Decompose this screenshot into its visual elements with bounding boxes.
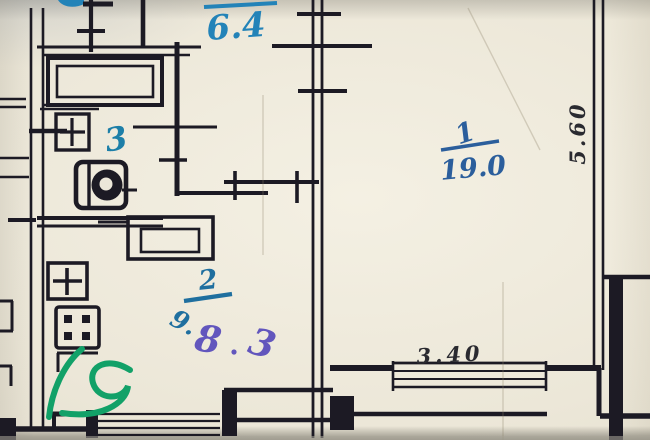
corrected-area-digit: 3 <box>244 318 281 367</box>
bathroom-number-label: 3 <box>102 118 131 159</box>
decimal-dot <box>231 349 236 354</box>
loggia-wall-bar <box>609 277 623 440</box>
room1-label: 1 19.0 <box>439 116 507 187</box>
burner <box>64 332 72 340</box>
toilet-bowl-hole <box>100 178 113 191</box>
burner <box>82 332 90 340</box>
floor-plan-scan: 6.4 3 1 19.0 2 9. 8 3 3.40 5.60 <box>0 0 650 440</box>
bathtub <box>40 58 162 109</box>
bathtub-inner <box>57 66 153 97</box>
kitchen-area-label: 6.4 <box>204 3 277 49</box>
toilet <box>76 162 126 208</box>
room1-area-text: 19.0 <box>439 150 507 187</box>
blue-ink-smudge <box>58 0 84 7</box>
crease <box>468 8 540 150</box>
kitchen-area-text: 6.4 <box>205 5 267 49</box>
washbasin <box>56 114 89 150</box>
left-edge-marks <box>0 99 70 386</box>
wall-pier <box>222 390 237 436</box>
area-correction-label: 8 3 <box>191 315 281 368</box>
closet-inner <box>141 229 199 252</box>
window-room2 <box>96 414 220 435</box>
burner <box>82 315 90 323</box>
stove-outline <box>56 307 99 348</box>
floor-plan-drawing: 6.4 3 1 19.0 2 9. 8 3 3.40 5.60 <box>0 0 650 440</box>
kitchen-sink <box>48 263 87 299</box>
burner <box>64 315 72 323</box>
green-nine-stroke <box>62 363 130 414</box>
room2-number-text: 2 <box>196 264 219 297</box>
dimension-bottom: 3.40 <box>416 340 484 368</box>
paper-creases <box>263 8 540 440</box>
built-in-closet <box>98 217 213 259</box>
room2-label: 2 9. 8 3 <box>165 264 280 368</box>
bottom-walls <box>0 361 650 440</box>
dimension-right: 5.60 <box>565 101 590 164</box>
green-annotation <box>49 349 130 417</box>
stove-4-burner <box>56 307 99 372</box>
scan-shadow <box>0 436 650 440</box>
green-flourish-stroke <box>49 349 82 417</box>
